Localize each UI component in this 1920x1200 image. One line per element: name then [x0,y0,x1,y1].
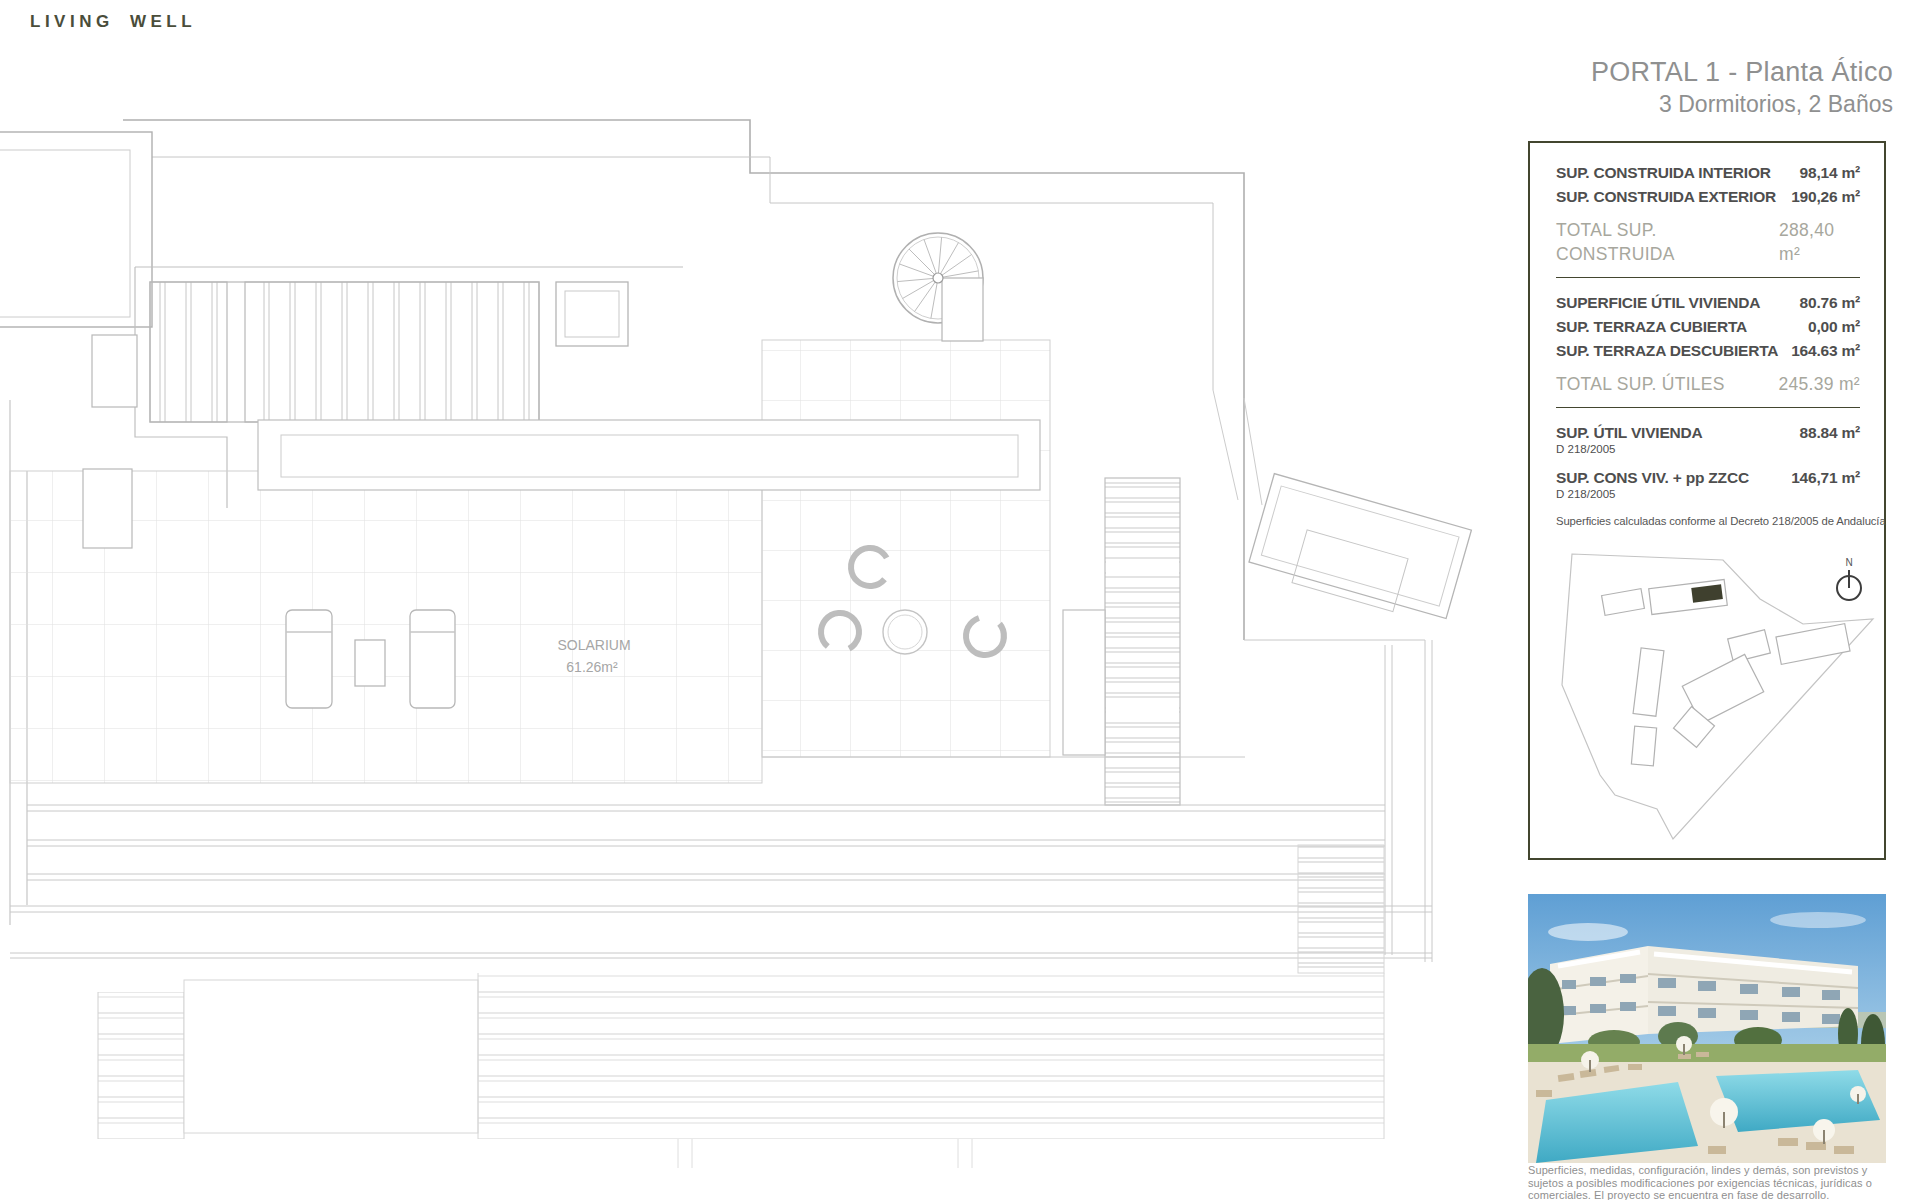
title-line-1: PORTAL 1 - Planta Ático [1591,56,1893,90]
row-label: SUP. CONSTRUIDA INTERIOR [1556,161,1771,185]
louver-slat-block [150,282,539,422]
surface-row: SUP. CONSTRUIDA EXTERIOR 190,26 m² [1556,185,1860,209]
svg-text:SOLARIUM: SOLARIUM [557,637,630,653]
pergola-louver-strip [1063,478,1180,805]
disclaimer-line: sujetos a posibles modificaciones por ex… [1528,1177,1920,1190]
title-line-2: 3 Dormitorios, 2 Baños [1591,90,1893,119]
row-value: 190,26 m² [1791,185,1860,209]
surface-row: SUP. TERRAZA DESCUBIERTA 164.63 m² [1556,339,1860,363]
surface-row: SUP. ÚTIL VIVIENDA 88.84 m² [1556,421,1860,445]
disclaimer-text: Superficies, medidas, configuración, lin… [1528,1164,1920,1200]
spiral-staircase [893,233,983,341]
svg-text:61.26m²: 61.26m² [566,659,618,675]
total-label: TOTAL SUP. CONSTRUIDA [1556,218,1779,266]
north-compass-icon: N [1837,557,1861,600]
page-title: PORTAL 1 - Planta Ático 3 Dormitorios, 2… [1591,56,1893,119]
floor-plan-drawing: SOLARIUM 61.26m² [0,0,1520,1200]
divider [1556,277,1860,278]
skylight-square [556,282,628,346]
row-label: SUP. CONSTRUIDA EXTERIOR [1556,185,1776,209]
row-value: 80.76 m² [1800,291,1860,315]
row-value: 98,14 m² [1800,161,1860,185]
decree-footnote: Superficies calculadas conforme al Decre… [1556,515,1860,527]
disclaimer-line: Superficies, medidas, configuración, lin… [1528,1164,1920,1177]
svg-text:N: N [1845,557,1852,568]
row-label: SUP. CONS VIV. + pp ZZCC [1556,466,1749,490]
total-value: 288,40 m² [1779,218,1860,266]
pergola-grid [762,340,1050,757]
total-row: TOTAL SUP. ÚTILES 245.39 m² [1556,372,1860,396]
total-label: TOTAL SUP. ÚTILES [1556,372,1725,396]
row-label: SUP. ÚTIL VIVIENDA [1556,421,1703,445]
surface-row: SUP. CONSTRUIDA INTERIOR 98,14 m² [1556,161,1860,185]
site-plan-map: N [1545,552,1875,848]
disclaimer-line: comerciales. El proyecto se encuentra en… [1528,1189,1920,1200]
total-row: TOTAL SUP. CONSTRUIDA 288,40 m² [1556,218,1860,266]
planter-bench [258,420,1040,490]
site-buildings [1602,579,1850,765]
row-value: 164.63 m² [1791,339,1860,363]
row-label: SUP. TERRAZA CUBIERTA [1556,315,1747,339]
row-value: 0,00 m² [1808,315,1860,339]
lower-buildings [98,845,1384,1168]
row-value: 146,71 m² [1791,466,1860,490]
divider [1556,407,1860,408]
roof-shafts [83,335,137,548]
surface-row: SUP. TERRAZA CUBIERTA 0,00 m² [1556,315,1860,339]
row-label: SUPERFICIE ÚTIL VIVIENDA [1556,291,1760,315]
surface-row: SUPERFICIE ÚTIL VIVIENDA 80.76 m² [1556,291,1860,315]
row-value: 88.84 m² [1800,421,1860,445]
surface-row: SUP. CONS VIV. + pp ZZCC 146,71 m² [1556,466,1860,490]
project-render-photo [1528,894,1886,1163]
row-label: SUP. TERRAZA DESCUBIERTA [1556,339,1778,363]
total-value: 245.39 m² [1779,372,1861,396]
slanted-roof-piece [1213,390,1471,626]
